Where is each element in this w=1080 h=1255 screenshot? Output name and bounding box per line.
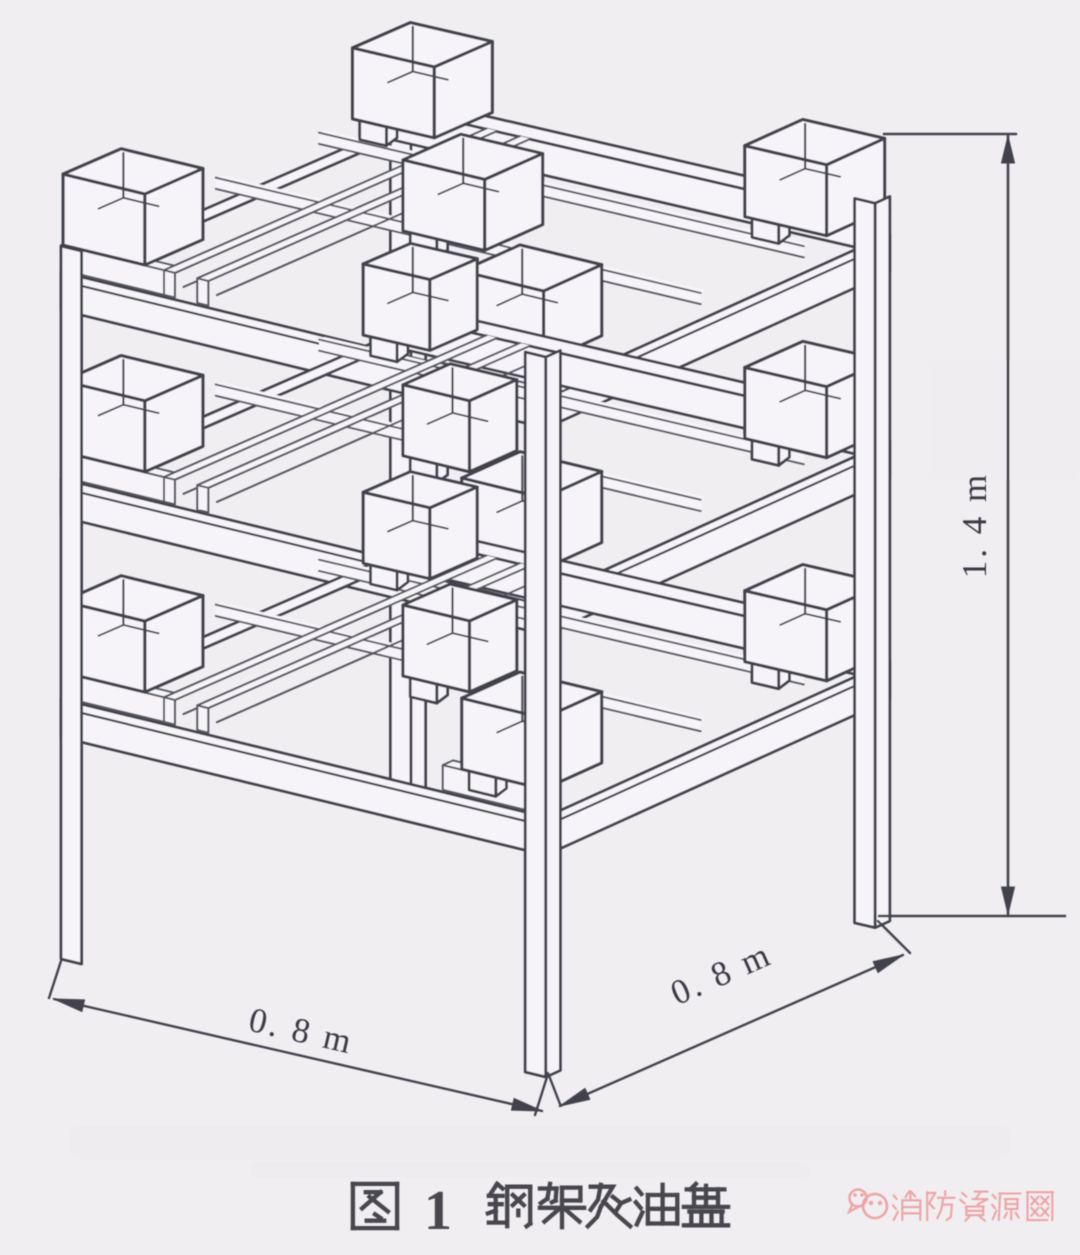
svg-text:1. 4 m: 1. 4 m bbox=[955, 472, 994, 578]
svg-text:1: 1 bbox=[424, 1180, 452, 1242]
